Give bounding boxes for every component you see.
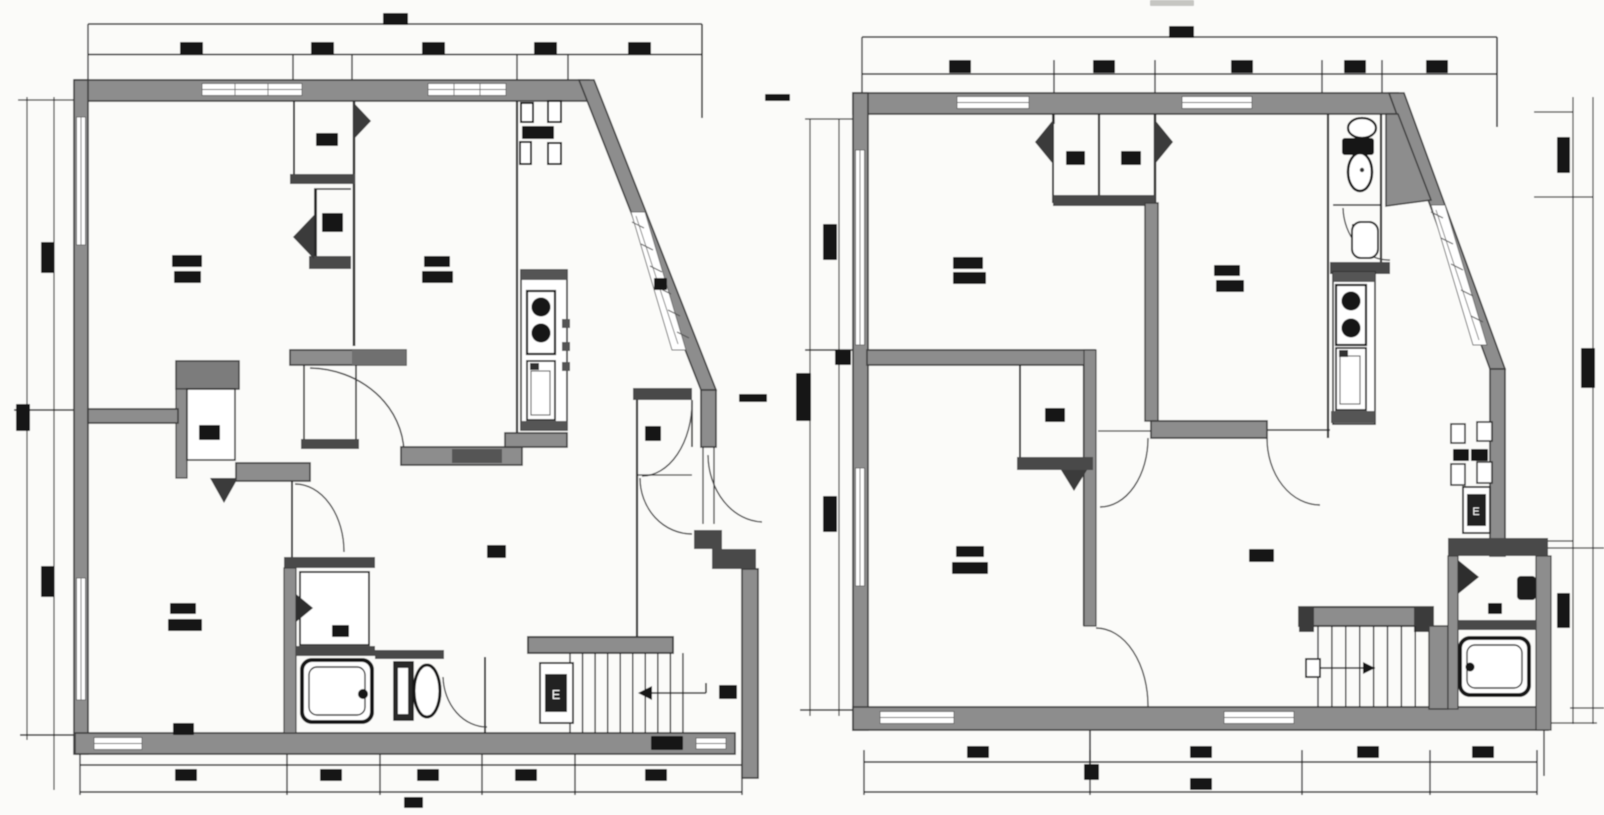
svg-text:E: E — [552, 687, 561, 702]
svg-text:E: E — [1472, 506, 1479, 518]
